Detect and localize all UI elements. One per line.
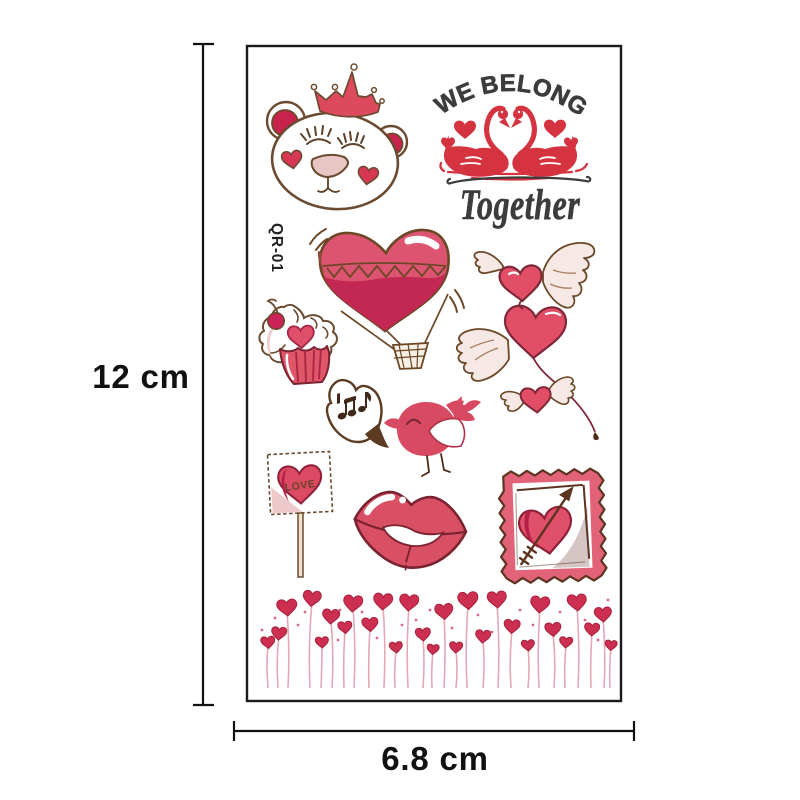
svg-text:QR-01: QR-01 xyxy=(268,223,285,273)
svg-text:12 cm: 12 cm xyxy=(92,358,190,395)
svg-text:6.8 cm: 6.8 cm xyxy=(381,740,489,777)
svg-text:Together: Together xyxy=(460,181,581,229)
